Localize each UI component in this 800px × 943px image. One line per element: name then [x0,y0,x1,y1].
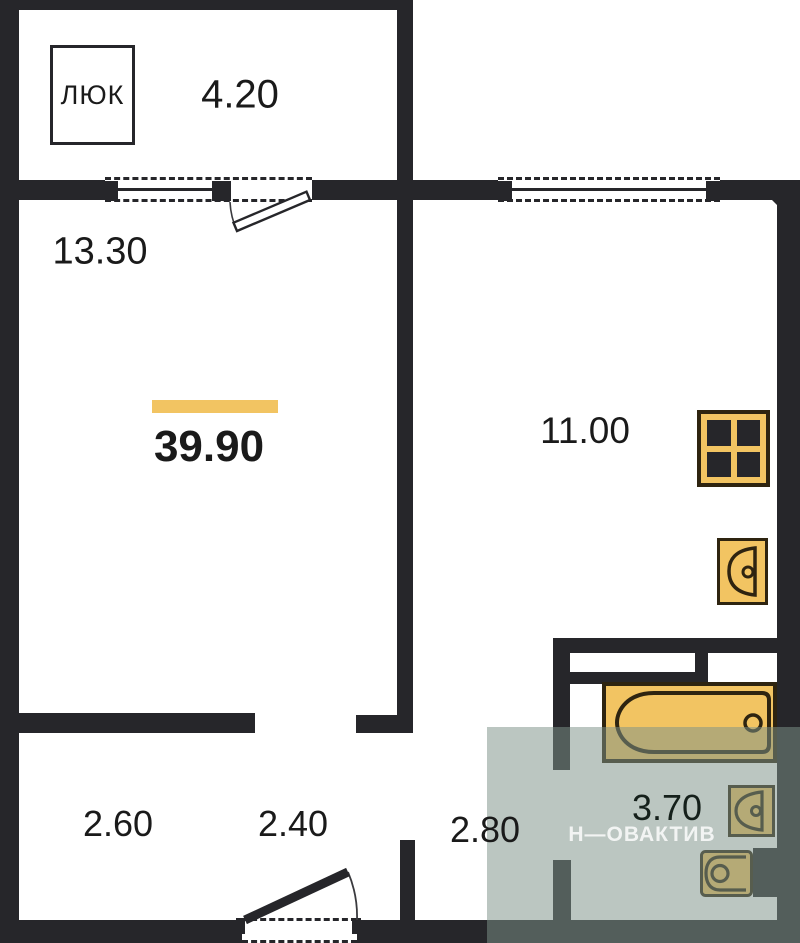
wall-left [0,0,19,943]
stove-burner [737,452,761,478]
total-area-accent-bar [152,400,278,413]
wall-balcony-divider-b [312,180,397,200]
label-hall-right: 2.80 [450,809,520,851]
balcony-door-icon [225,172,320,240]
label-total-area: 39.90 [154,422,264,472]
label-hall-mid: 2.40 [258,803,328,845]
wall-central [397,0,413,715]
wall-kitchen-top-b [720,180,800,200]
balcony-window-glass [118,188,213,191]
entrance-door-icon [238,862,363,922]
stove-icon [697,410,770,487]
label-kitchen-area: 11.00 [540,410,630,452]
kitchen-window-jamb-right [706,181,720,201]
kitchen-window-glass [512,188,706,191]
kitchen-window-dash-top [498,177,720,180]
hatch-box: ЛЮК [50,45,135,145]
kitchen-window-dash-bottom [498,199,720,202]
watermark-logo: Н—ОВАКТИВ [568,823,715,847]
hatch-label: ЛЮК [61,80,125,111]
stove-burner [707,420,731,446]
label-living-area: 13.30 [52,231,147,274]
wall-bathroom-duct-connector [695,653,708,684]
wall-kitchen-top-a [413,180,498,200]
wall-bottom-left [0,920,242,943]
label-hall-left: 2.60 [83,803,153,845]
stove-burner [707,452,731,478]
stove-burner [737,420,761,446]
wall-top [0,0,413,10]
floor-plan: ЛЮК 4.20 13.30 39.90 11.00 2.60 2.40 2.8… [0,0,800,943]
wall-central-stub [356,715,413,733]
wall-balcony-divider-a [19,180,105,200]
balcony-window-jamb-left [105,181,118,201]
wall-bathroom-top [553,638,800,653]
wall-hallway [19,713,255,733]
wall-entry-stub [400,840,415,920]
kitchen-sink-icon [717,538,768,605]
kitchen-window-jamb-left [498,181,512,201]
label-balcony-area: 4.20 [201,73,279,118]
